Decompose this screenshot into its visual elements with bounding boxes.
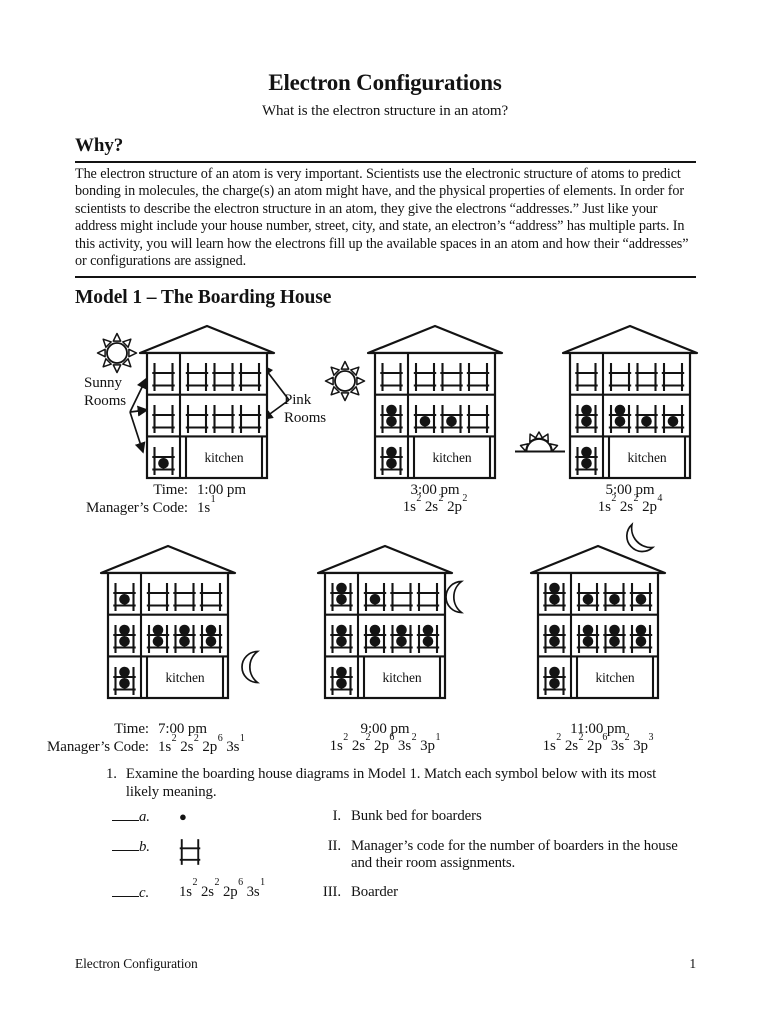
boarder-icon: [336, 678, 347, 689]
boarder-symbol: ●: [161, 808, 307, 827]
boarder-icon: [423, 625, 434, 636]
matching-list: a. ● I. Bunk bed for boarders b. II. Man…: [106, 808, 698, 902]
electron-code-symbol: 1s2 2s2 2p6 3s1: [161, 884, 307, 902]
match-letter: c.: [139, 885, 149, 901]
boarder-icon: [336, 583, 347, 594]
house-icon: kitchen: [93, 543, 243, 703]
house-4: kitchen: [93, 543, 243, 703]
boarder-icon: [370, 636, 381, 647]
boarder-icon: [636, 594, 647, 605]
boarder-icon: [370, 594, 381, 605]
boarder-icon: [549, 678, 560, 689]
house-icon: kitchen: [360, 323, 510, 483]
kitchen-label: kitchen: [204, 450, 243, 465]
time-prefix-label: Time:: [57, 482, 197, 499]
moon-icon: [240, 650, 266, 689]
boarder-icon: [609, 625, 620, 636]
match-meaning: Manager’s code for the number of boarder…: [343, 838, 698, 873]
boarder-icon: [336, 667, 347, 678]
house-icon: kitchen: [132, 323, 282, 483]
bunk-bed-symbol: [161, 838, 307, 872]
page-footer: Electron Configuration 1: [75, 956, 696, 972]
boarder-icon: [179, 625, 190, 636]
house-2: kitchen: [360, 323, 510, 483]
question-number: 1.: [106, 766, 117, 801]
house-1: kitchen: [132, 323, 282, 483]
boarder-icon: [615, 416, 626, 427]
header: Electron Configurations What is the elec…: [0, 70, 770, 120]
boarder-icon: [583, 594, 594, 605]
house-icon: kitchen: [523, 543, 673, 703]
boarder-icon: [581, 405, 592, 416]
boarder-icon: [153, 636, 164, 647]
house-6-labels: 11:00 pm1s2 2s2 2p6 3s2 3p3: [448, 721, 748, 755]
boarder-icon: [583, 625, 594, 636]
match-row-b-blank: b.: [106, 838, 161, 857]
question-text: Examine the boarding house diagrams in M…: [126, 766, 688, 801]
model-1-figure: Sunny Rooms Pink Rooms kitchenTime:1:00 …: [0, 318, 770, 764]
code-prefix-label: Manager’s Code:: [18, 739, 158, 756]
boarder-icon: [119, 625, 130, 636]
moon-icon: [626, 522, 652, 561]
house-3-labels: 5:00 pm1s2 2s2 2p4: [480, 482, 770, 516]
boarder-icon: [549, 594, 560, 605]
boarder-icon: [615, 405, 626, 416]
boarder-icon: [336, 636, 347, 647]
footer-title: Electron Configuration: [75, 956, 198, 972]
boarder-icon: [581, 458, 592, 469]
boarder-icon: [396, 625, 407, 636]
house-icon: kitchen: [310, 543, 460, 703]
kitchen-label: kitchen: [382, 670, 421, 685]
boarder-icon: [636, 625, 647, 636]
bunk-bed-icon: [180, 839, 201, 865]
why-heading: Why?: [75, 135, 123, 157]
boarder-icon: [609, 636, 620, 647]
boarder-icon: [583, 636, 594, 647]
boarder-icon: [386, 416, 397, 427]
page-title: Electron Configurations: [0, 70, 770, 96]
divider-rule-bottom: [75, 276, 696, 278]
question-1: 1. Examine the boarding house diagrams i…: [106, 766, 698, 801]
kitchen-label: kitchen: [165, 670, 204, 685]
boarder-icon: [668, 416, 679, 427]
house-5: kitchen: [310, 543, 460, 703]
kitchen-label: kitchen: [627, 450, 666, 465]
boarder-icon: [423, 636, 434, 647]
boarder-icon: [119, 636, 130, 647]
house-time: 11:00 pm: [448, 721, 748, 738]
match-row-a-blank: a.: [106, 808, 161, 827]
boarder-icon: [549, 583, 560, 594]
house-time: 5:00 pm: [480, 482, 770, 499]
boarder-icon: [609, 594, 620, 605]
answer-blank: [112, 838, 139, 851]
boarder-icon: [386, 447, 397, 458]
model-1-heading: Model 1 – The Boarding House: [75, 287, 331, 309]
house-3: kitchen: [555, 323, 705, 483]
boarder-icon: [206, 636, 217, 647]
boarder-icon: [641, 416, 652, 427]
boarder-icon: [446, 416, 457, 427]
boarder-icon: [549, 667, 560, 678]
match-roman: I.: [307, 808, 343, 826]
match-row-c-blank: c.: [106, 884, 161, 903]
boarder-icon: [386, 405, 397, 416]
page-subtitle: What is the electron structure in an ato…: [0, 103, 770, 120]
sunset-icon: [514, 430, 566, 461]
managers-code: 1s2 2s2 2p4: [480, 499, 770, 516]
match-meaning: Boarder: [343, 884, 698, 902]
boarder-icon: [581, 447, 592, 458]
kitchen-label: kitchen: [432, 450, 471, 465]
boarder-icon: [119, 678, 130, 689]
time-prefix-label: Time:: [18, 721, 158, 738]
house-6: kitchen: [523, 543, 673, 703]
sun-icon: [323, 359, 367, 408]
page-number: 1: [689, 956, 696, 972]
match-letter: a.: [139, 809, 150, 825]
moon-icon: [444, 580, 470, 619]
boarder-icon: [153, 625, 164, 636]
answer-blank: [112, 808, 139, 821]
boarder-icon: [549, 636, 560, 647]
boarder-icon: [386, 458, 397, 469]
why-paragraph: The electron structure of an atom is ver…: [75, 166, 697, 270]
worksheet-page: Electron Configurations What is the elec…: [0, 0, 770, 1024]
boarder-icon: [179, 636, 190, 647]
answer-blank: [112, 884, 139, 897]
match-roman: III.: [307, 884, 343, 902]
boarder-icon: [370, 625, 381, 636]
match-roman: II.: [307, 838, 343, 856]
boarder-icon: [636, 636, 647, 647]
boarder-icon: [396, 636, 407, 647]
boarder-icon: [420, 416, 431, 427]
match-meaning: Bunk bed for boarders: [343, 808, 698, 826]
boarder-icon: [549, 625, 560, 636]
boarder-icon: [119, 667, 130, 678]
kitchen-label: kitchen: [595, 670, 634, 685]
boarder-icon: ●: [179, 809, 187, 824]
boarder-icon: [119, 594, 130, 605]
boarder-icon: [206, 625, 217, 636]
boarder-icon: [581, 416, 592, 427]
sun-icon: [95, 331, 139, 380]
house-icon: kitchen: [555, 323, 705, 483]
match-letter: b.: [139, 839, 150, 855]
managers-code: 1s2 2s2 2p6 3s2 3p3: [448, 738, 748, 755]
boarder-icon: [158, 458, 169, 469]
bunk-bed-icon: [179, 838, 201, 866]
divider-rule-top: [75, 161, 696, 163]
boarder-icon: [336, 625, 347, 636]
code-prefix-label: Manager’s Code:: [57, 500, 197, 517]
boarder-icon: [336, 594, 347, 605]
